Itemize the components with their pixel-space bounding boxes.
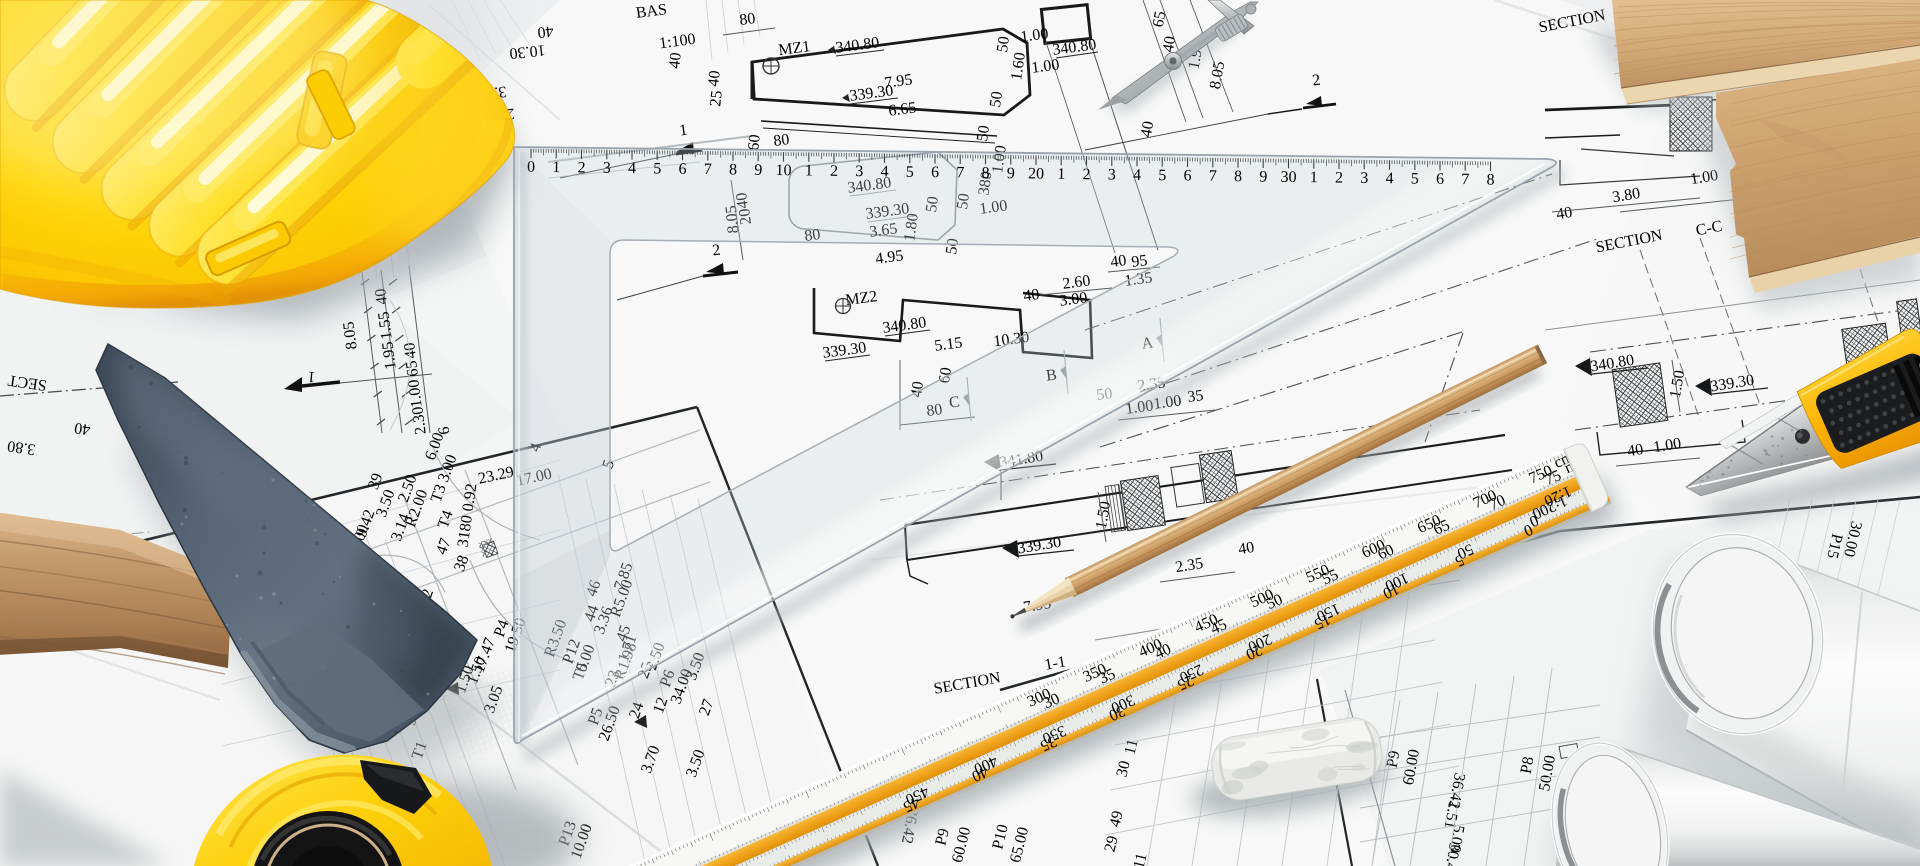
svg-text:P8: P8: [1518, 755, 1538, 775]
svg-text:1.00: 1.00: [1030, 56, 1060, 77]
svg-text:40: 40: [401, 342, 420, 360]
svg-text:40: 40: [537, 22, 555, 41]
svg-text:40: 40: [1109, 252, 1127, 271]
svg-text:7: 7: [1461, 171, 1469, 188]
svg-text:80: 80: [738, 10, 756, 29]
svg-text:4: 4: [628, 160, 636, 177]
svg-text:20: 20: [1028, 165, 1044, 182]
svg-text:2: 2: [1082, 166, 1090, 183]
svg-text:50: 50: [987, 90, 1006, 108]
svg-text:5: 5: [1411, 170, 1419, 187]
svg-text:40: 40: [1626, 441, 1644, 460]
svg-text:6: 6: [1183, 167, 1191, 184]
svg-text:40: 40: [1555, 204, 1573, 223]
svg-text:3: 3: [1360, 170, 1368, 187]
svg-text:2: 2: [830, 163, 838, 180]
svg-text:4: 4: [880, 163, 888, 180]
svg-text:9: 9: [1259, 168, 1267, 185]
svg-text:3: 3: [1108, 166, 1116, 183]
svg-text:7: 7: [956, 164, 964, 181]
svg-text:80: 80: [772, 131, 790, 150]
svg-text:5: 5: [906, 164, 914, 181]
svg-text:6.65: 6.65: [887, 99, 917, 120]
svg-text:2: 2: [1335, 169, 1343, 186]
svg-text:2.30: 2.30: [409, 406, 429, 436]
svg-text:40: 40: [1138, 120, 1158, 139]
svg-text:5: 5: [1158, 167, 1166, 184]
svg-text:9: 9: [754, 162, 762, 179]
svg-text:6: 6: [931, 164, 939, 181]
svg-text:3: 3: [603, 160, 611, 177]
svg-text:9: 9: [1007, 165, 1015, 182]
svg-text:40: 40: [372, 288, 391, 306]
svg-text:40: 40: [666, 52, 685, 70]
svg-text:30: 30: [1280, 169, 1296, 186]
svg-text:8: 8: [729, 161, 737, 178]
svg-text:1: 1: [307, 368, 316, 386]
svg-text:50: 50: [994, 35, 1013, 53]
svg-text:65: 65: [1150, 10, 1170, 29]
svg-text:65: 65: [403, 360, 422, 378]
svg-text:3: 3: [855, 163, 863, 180]
svg-text:8: 8: [1234, 168, 1242, 185]
svg-text:6: 6: [678, 161, 686, 178]
svg-text:60: 60: [745, 134, 764, 152]
svg-text:8: 8: [981, 165, 989, 182]
svg-text:10: 10: [775, 162, 791, 179]
svg-text:4: 4: [1133, 167, 1141, 184]
svg-text:1.00: 1.00: [1019, 25, 1049, 46]
svg-text:25: 25: [707, 90, 726, 108]
svg-text:40: 40: [705, 70, 724, 88]
svg-text:2: 2: [577, 159, 585, 176]
svg-text:8: 8: [1486, 171, 1494, 188]
svg-text:50: 50: [974, 124, 993, 142]
svg-text:1: 1: [1310, 169, 1318, 186]
svg-text:4: 4: [1385, 170, 1393, 187]
svg-text:7: 7: [1209, 168, 1217, 185]
svg-text:7: 7: [704, 161, 712, 178]
svg-text:P9: P9: [1384, 749, 1404, 769]
svg-text:5: 5: [653, 160, 661, 177]
svg-text:40: 40: [73, 419, 91, 438]
svg-text:0: 0: [527, 159, 535, 176]
svg-text:1: 1: [805, 162, 813, 179]
svg-text:1: 1: [552, 159, 560, 176]
svg-text:1: 1: [1057, 166, 1065, 183]
svg-text:1.55: 1.55: [375, 311, 395, 341]
svg-text:6: 6: [1436, 171, 1444, 188]
svg-text:5.15: 5.15: [933, 334, 963, 355]
svg-text:4.95: 4.95: [874, 247, 904, 268]
svg-text:1.95: 1.95: [379, 341, 399, 371]
svg-text:8.05: 8.05: [340, 321, 360, 351]
svg-text:40: 40: [1022, 286, 1040, 305]
svg-text:40: 40: [1237, 539, 1255, 558]
